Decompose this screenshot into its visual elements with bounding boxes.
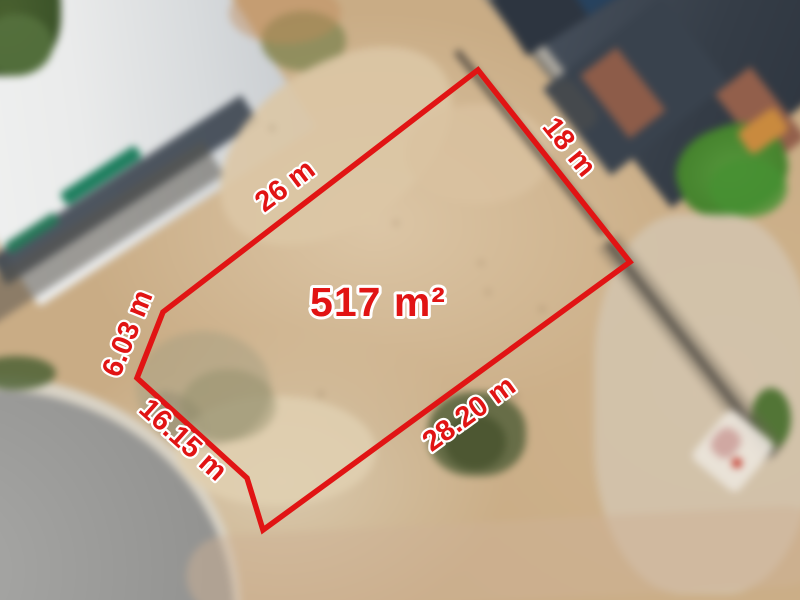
dim-label-26m: 26 m [249,153,321,218]
area-label: 517 m² [310,279,446,325]
dim-label-28-20m: 28.20 m [417,370,522,458]
lot-annotation-overlay: 26 m 18 m 28.20 m 16.15 m 6.03 m 517 m² [0,0,800,600]
aerial-photo: 26 m 18 m 28.20 m 16.15 m 6.03 m 517 m² [0,0,800,600]
dim-label-16-15m: 16.15 m [133,393,233,488]
dim-label-6-03m: 6.03 m [96,286,159,382]
dim-label-18m: 18 m [536,111,602,183]
